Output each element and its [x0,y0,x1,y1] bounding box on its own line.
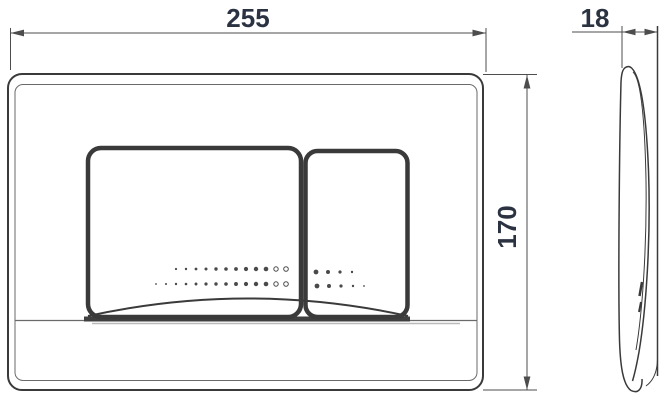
height-dim-label: 170 [492,205,522,248]
arrow-up-icon [524,75,531,89]
arrow-right-icon [645,29,658,36]
arrow-left-icon [623,29,636,36]
side-accent-mark [640,282,643,296]
large-flush-button [88,148,301,317]
front-view [8,74,483,390]
flush-plate-dimension-drawing: 255 170 18 [0,0,668,404]
depth-dim-label: 18 [581,3,610,33]
small-flush-button [306,151,408,317]
arrow-down-icon [524,377,531,391]
dimension-width: 255 [11,3,487,72]
side-back-bottom-curve [646,360,658,386]
side-front-rim [619,67,642,392]
side-view [619,26,658,392]
arrow-left-icon [11,30,25,37]
technical-drawing-page: 255 170 18 [0,0,668,404]
arrow-right-icon [473,30,487,37]
dimension-depth: 18 [572,3,658,68]
width-dim-label: 255 [226,3,269,33]
dimension-height: 170 [483,75,537,391]
